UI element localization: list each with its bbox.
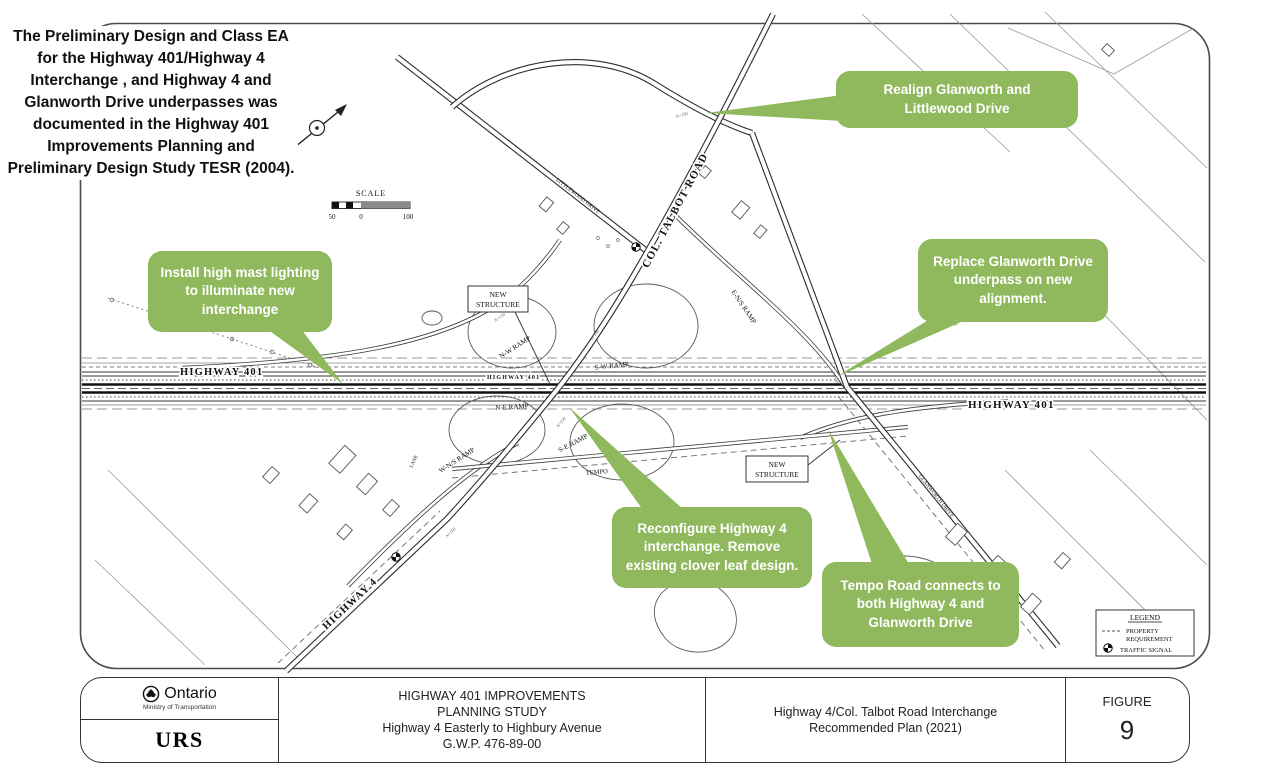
agency-ministry: Ministry of Transportation [143,704,216,711]
curve-label: A=150 [675,111,689,119]
callout-text: Tempo Road connects to both Highway 4 an… [834,577,1007,632]
sheet-line1: Highway 4/Col. Talbot Road Interchange [774,704,998,720]
callout-text: Replace Glanworth Drive underpass on new… [930,253,1096,308]
callout-replace-underpass: Replace Glanworth Drive underpass on new… [918,239,1108,322]
figure-page: { "colors": { "callout_green": "#8fb95c"… [0,0,1266,770]
legend-title: LEGEND [1130,613,1161,622]
label-ramp-ne: N-E RAMP [495,402,529,412]
trillium-icon [142,685,160,703]
title-block: Ontario Ministry of Transportation URS H… [80,677,1190,763]
label-lane: LANE [409,455,419,469]
label-ramp-se: S-E RAMP [557,432,589,454]
callout-text: Realign Glanworth and Littlewood Drive [848,81,1066,117]
label-highway-401-center: HIGHWAY 401 [487,375,540,381]
label-ramp-nw: N-W RAMP [498,334,532,360]
label-littlewood-drive: LITTLEWOOD DRIVE [555,177,602,215]
legend-property-line1: PROPERTY [1126,628,1159,635]
callout-reconfigure-interchange: Reconfigure Highway 4 interchange. Remov… [612,507,812,588]
curve-label: A=150 [555,415,567,428]
new-structure-label-line1: NEW [768,460,786,469]
legend-traffic-signal: TRAFFIC SIGNAL [1120,647,1172,654]
curve-label: A=150 [493,311,507,322]
callout-text: Reconfigure Highway 4 interchange. Remov… [624,520,800,575]
label-col-talbot-road: COL. TALBOT ROAD [640,151,711,270]
agency-name: Ontario [164,685,216,703]
legend: LEGEND PROPERTY REQUIREMENT TRAFFIC SIGN… [1096,610,1194,656]
project-line1: HIGHWAY 401 IMPROVEMENTS [398,688,585,704]
project-line2: PLANNING STUDY [437,704,547,720]
label-glanworth-drive: GLANWORTH DRIVE [917,474,956,520]
ea-note: The Preliminary Design and Class EA for … [4,26,298,180]
scale-title: SCALE [356,189,386,198]
scale-tick-0: 0 [359,213,363,221]
title-block-agency-cell: Ontario Ministry of Transportation URS [81,678,279,762]
title-block-sheet-cell: Highway 4/Col. Talbot Road Interchange R… [706,678,1066,762]
new-structure-label-line1: NEW [489,290,507,299]
new-structure-label-line2: STRUCTURE [755,470,799,479]
figure-label: FIGURE [1102,694,1151,709]
project-line3: Highway 4 Easterly to Highbury Avenue [382,720,601,736]
callout-text: Install high mast lighting to illuminate… [160,264,320,319]
callout-tempo-road: Tempo Road connects to both Highway 4 an… [822,562,1019,647]
project-line4: G.W.P. 476-89-00 [443,736,541,752]
consultant-name: URS [155,727,204,753]
traffic-signal-icon [1104,644,1112,652]
label-ramp-ens: E-N/S RAMP [729,288,758,325]
scale-bar: SCALE 50 0 100 [329,189,414,221]
callout-tail-replace [836,319,968,377]
label-highway-401-right: HIGHWAY 401 [968,399,1055,411]
label-tempo-road: TEMPO [586,468,609,477]
new-structure-label-line2: STRUCTURE [476,300,520,309]
new-structure-callout-west: NEW STRUCTURE [468,286,550,384]
legend-property-line2: REQUIREMENT [1126,636,1173,643]
ea-note-text: The Preliminary Design and Class EA for … [8,28,295,177]
label-ramp-sw: S-W RAMP [594,360,629,372]
title-block-project-cell: HIGHWAY 401 IMPROVEMENTS PLANNING STUDY … [279,678,706,762]
title-block-figure-cell: FIGURE 9 [1066,678,1188,762]
sheet-line2: Recommended Plan (2021) [809,720,962,736]
callout-realign-glanworth: Realign Glanworth and Littlewood Drive [836,71,1078,128]
ontario-logo: Ontario Ministry of Transportation [81,678,278,720]
traffic-signal-icon [632,243,640,251]
callout-tails [267,95,968,564]
label-highway-401-left: HIGHWAY 401 [180,367,263,378]
consultant-logo: URS [81,720,278,762]
traffic-signal-icon [392,553,400,561]
north-arrow-icon [295,104,347,147]
curve-label: A=150 [444,526,457,539]
figure-number: 9 [1120,715,1134,746]
scale-tick-50: 50 [329,213,337,221]
scale-tick-100: 100 [403,213,414,221]
callout-high-mast-lighting: Install high mast lighting to illuminate… [148,251,332,332]
